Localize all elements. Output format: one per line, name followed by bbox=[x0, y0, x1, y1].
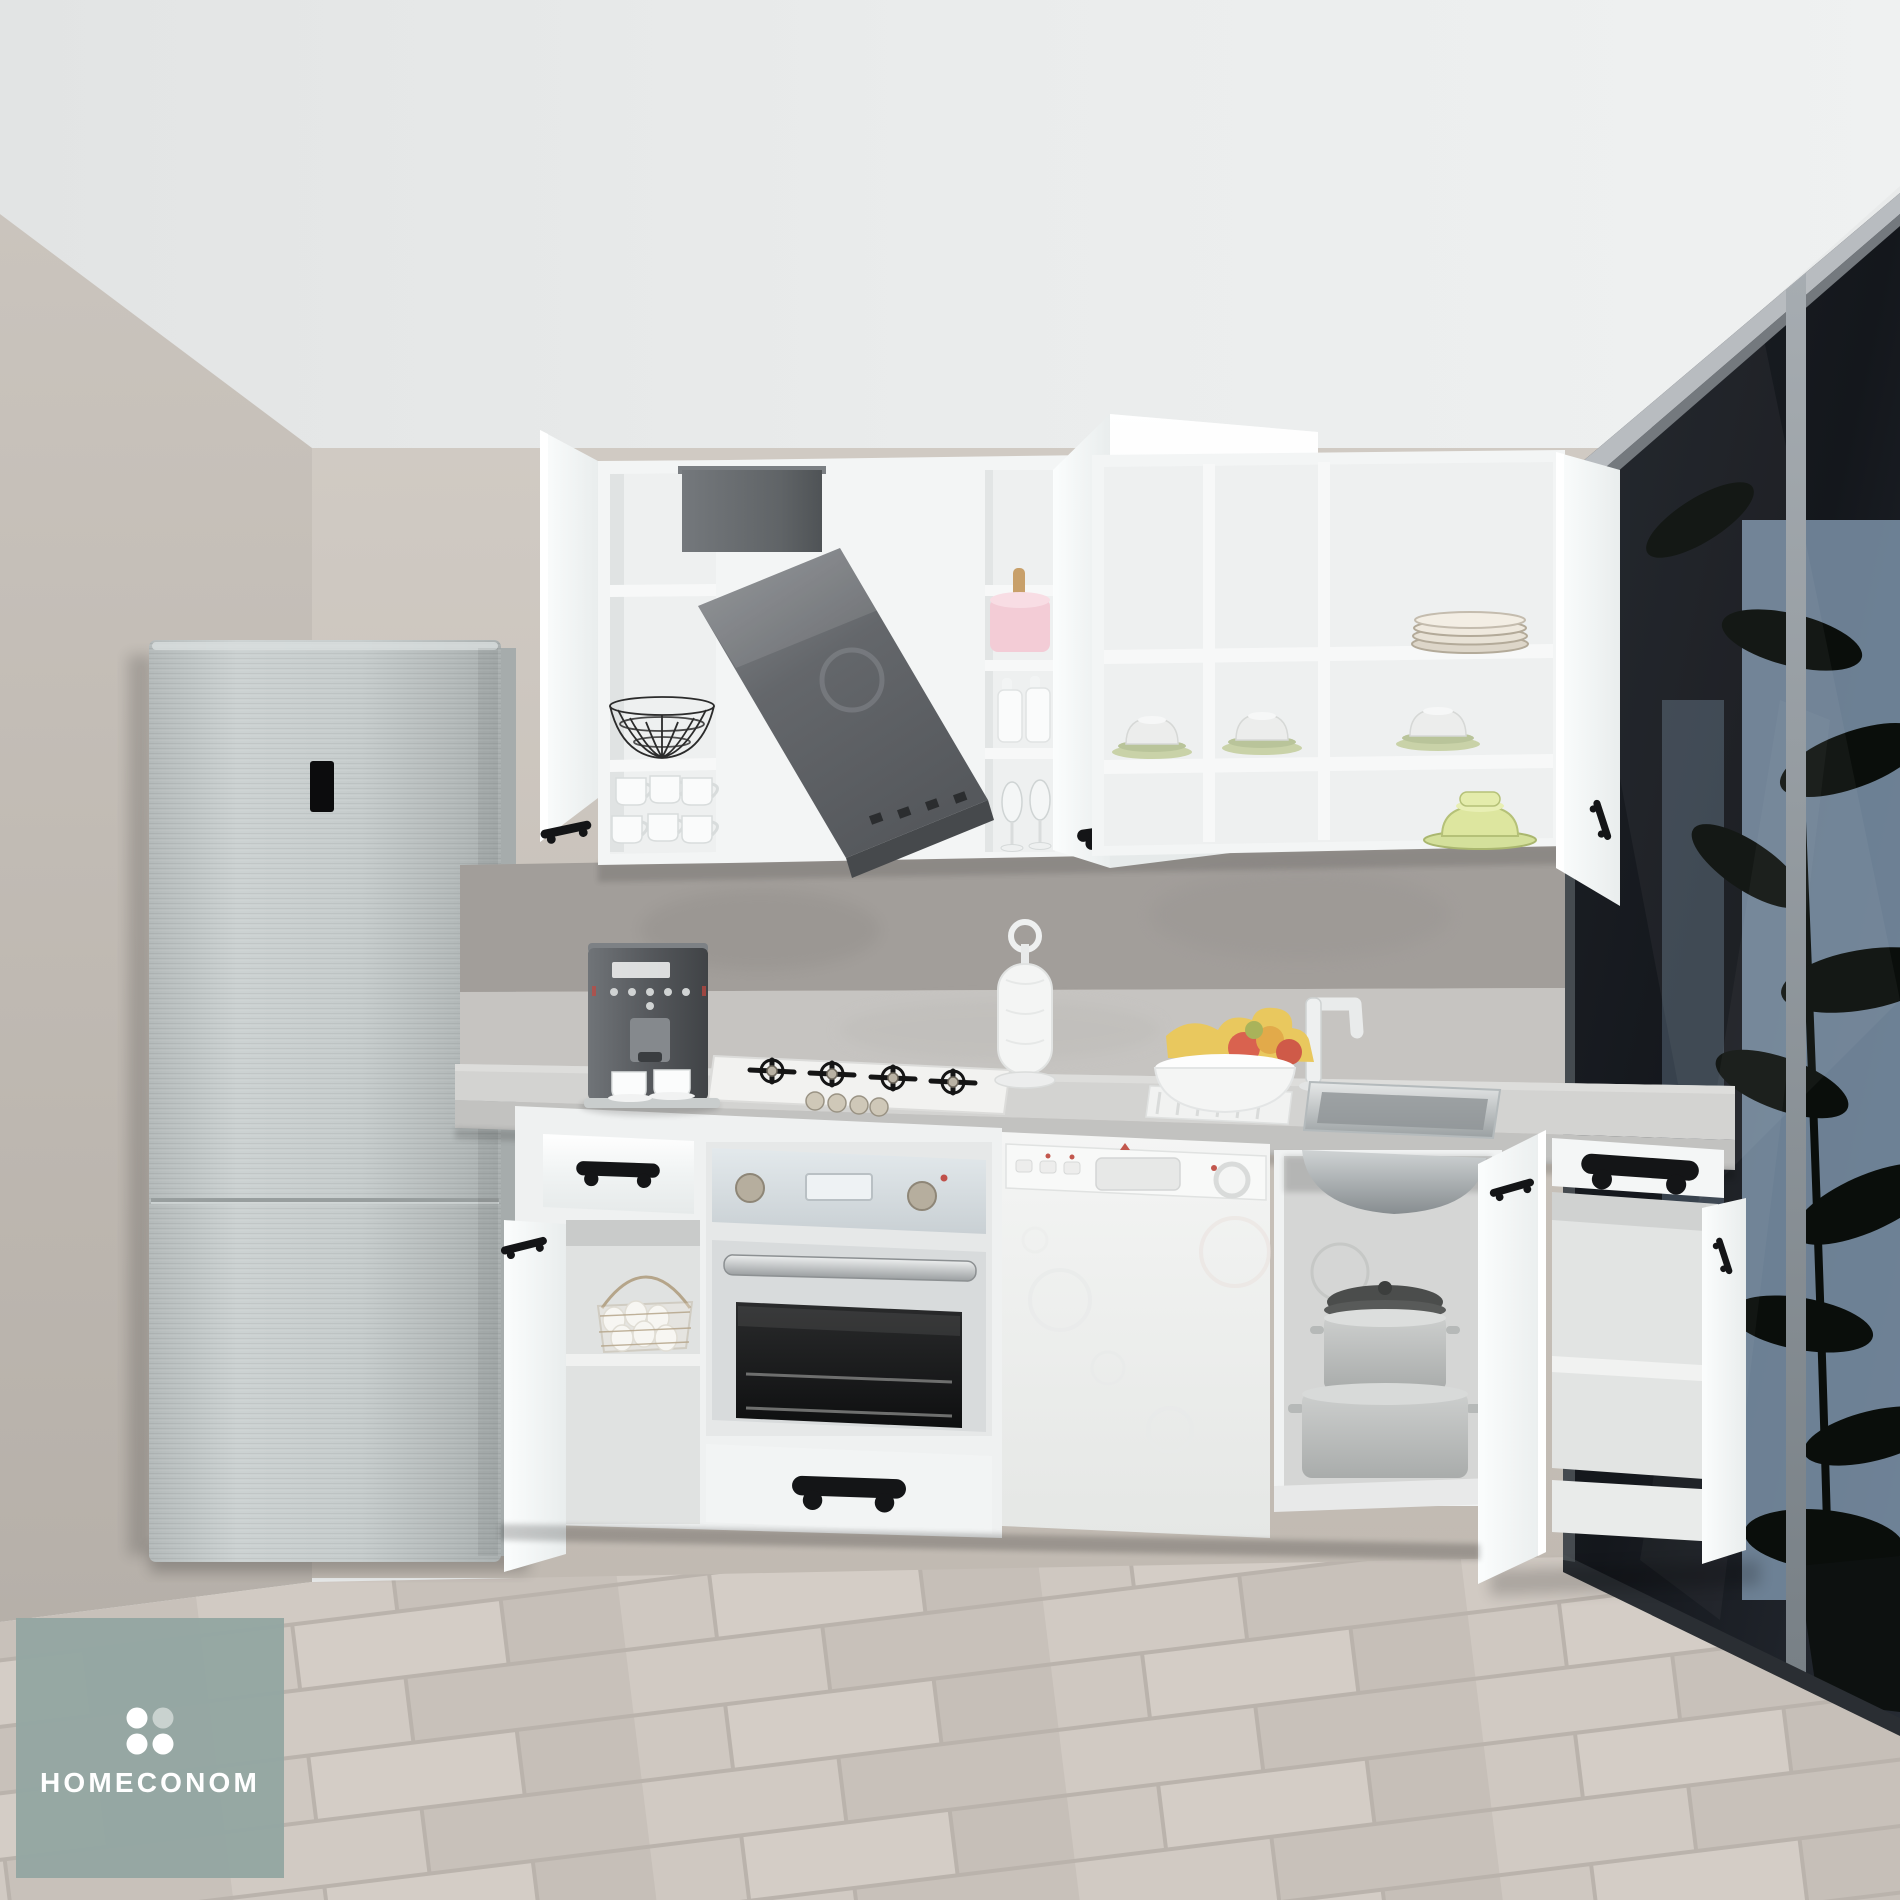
door-edge bbox=[1538, 1130, 1546, 1556]
open-door-panel bbox=[1478, 1130, 1546, 1584]
fridge-top-edge bbox=[152, 642, 498, 650]
hood-chimney bbox=[682, 470, 822, 552]
logo-background bbox=[16, 1618, 284, 1878]
concrete-mottle-2 bbox=[1150, 870, 1450, 960]
right-open-door-right bbox=[1702, 1198, 1746, 1564]
kitchen-render-scene: HOMECONOM bbox=[0, 0, 1900, 1900]
cups-cabinet-shelf-2 bbox=[610, 758, 716, 772]
right-wall-cabinet bbox=[1092, 450, 1565, 856]
logo-text: HOMECONOM bbox=[40, 1767, 260, 1798]
upper-left-open-door bbox=[540, 430, 598, 846]
right-cabinet-interior bbox=[1552, 1192, 1718, 1480]
sink-base-cabinet bbox=[1274, 1150, 1502, 1512]
plates-stack bbox=[1412, 612, 1528, 653]
fridge-display bbox=[310, 761, 334, 812]
right-cabinet-plinth bbox=[1552, 1480, 1718, 1542]
oven-indicator-light bbox=[941, 1175, 948, 1182]
left-base-open-door bbox=[500, 1220, 566, 1572]
dishwasher bbox=[1002, 1132, 1270, 1538]
interior-shelf bbox=[566, 1354, 700, 1366]
oven-knob-left bbox=[736, 1174, 764, 1202]
under-oven-drawer bbox=[706, 1444, 992, 1534]
pot-lid-knob bbox=[1378, 1281, 1392, 1295]
dishwasher-handle-recess bbox=[1096, 1158, 1180, 1190]
oven-display bbox=[806, 1174, 872, 1200]
wood-floor bbox=[0, 1556, 1900, 1900]
upper-cabinets bbox=[540, 414, 1620, 906]
right-open-door-edge bbox=[1556, 452, 1564, 872]
open-door-panel bbox=[504, 1220, 566, 1572]
coffee-accent-left bbox=[592, 986, 596, 996]
dishwasher-knob bbox=[1216, 1164, 1248, 1196]
cups-cabinet-shelf-1 bbox=[610, 584, 716, 597]
towel-holder-base bbox=[995, 1072, 1055, 1088]
scene-canvas: HOMECONOM bbox=[0, 0, 1900, 1900]
fridge-door-gap bbox=[151, 1198, 499, 1202]
coffee-machine-display bbox=[612, 962, 670, 978]
interior-top-shadow bbox=[566, 1220, 700, 1246]
open-door-panel bbox=[540, 430, 598, 842]
coffee-spout bbox=[638, 1052, 662, 1062]
watermark-logo: HOMECONOM bbox=[16, 1618, 284, 1878]
glass-mullion bbox=[1786, 273, 1806, 1680]
open-door-edge bbox=[540, 430, 548, 842]
ceiling bbox=[0, 0, 1900, 464]
oven bbox=[706, 1142, 992, 1436]
pear bbox=[1245, 1021, 1263, 1039]
middle-shelf-2 bbox=[985, 660, 1055, 671]
coffee-machine bbox=[580, 943, 720, 1116]
coffee-drip-tray bbox=[584, 1098, 720, 1108]
upper-right-open-door bbox=[1556, 452, 1620, 906]
upper-pot bbox=[1324, 1316, 1446, 1390]
middle-shelf-3 bbox=[985, 748, 1055, 759]
cabinet-open-interior bbox=[566, 1220, 700, 1524]
fridge-door-gap-light bbox=[151, 1202, 499, 1204]
dishwasher-knob-light bbox=[1211, 1165, 1217, 1171]
right-open-door-left bbox=[1478, 1130, 1546, 1584]
coffee-accent-right bbox=[702, 986, 706, 996]
oven-knob-right bbox=[908, 1182, 936, 1210]
